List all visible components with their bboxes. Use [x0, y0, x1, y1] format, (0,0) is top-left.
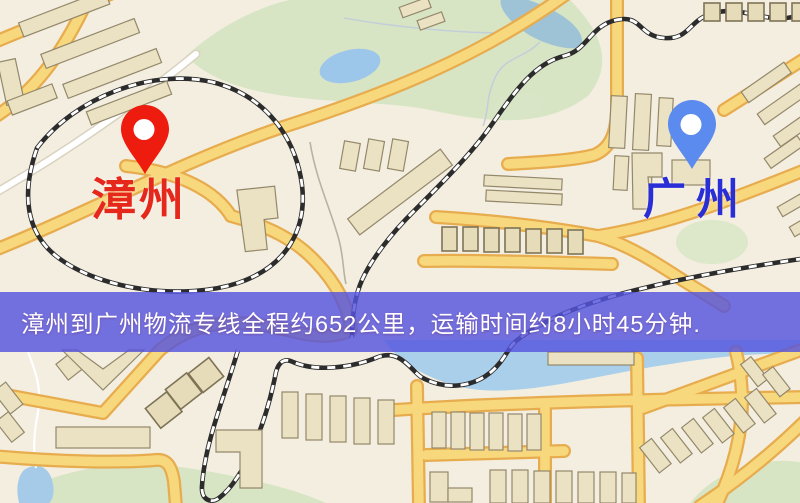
map-screenshot: 漳州 广州 漳州到广州物流专线全程约652公里，运输时间约8小时45分钟.: [0, 0, 800, 503]
origin-label: 漳州: [91, 177, 187, 222]
origin-pin-hole: [134, 119, 155, 140]
destination-pin-hole: [681, 114, 702, 135]
map-canvas[interactable]: [0, 0, 800, 503]
route-info-banner: 漳州到广州物流专线全程约652公里，运输时间约8小时45分钟.: [0, 292, 800, 352]
route-info-text: 漳州到广州物流专线全程约652公里，运输时间约8小时45分钟.: [21, 305, 701, 339]
destination-label: 广州: [643, 179, 749, 222]
destination-marker[interactable]: [668, 100, 716, 169]
